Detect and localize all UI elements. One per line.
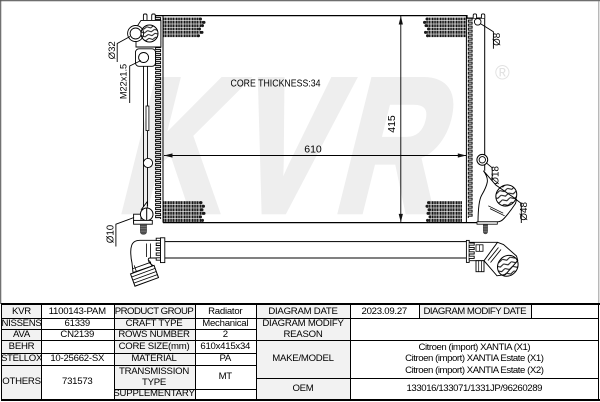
svg-text:Ø8: Ø8 bbox=[492, 32, 503, 46]
svg-text:®: ® bbox=[495, 63, 510, 85]
svg-text:Ø48: Ø48 bbox=[519, 201, 530, 220]
svg-text:610: 610 bbox=[304, 144, 322, 156]
svg-text:Ø32: Ø32 bbox=[107, 41, 118, 59]
svg-text:415: 415 bbox=[386, 115, 398, 133]
svg-text:Ø10: Ø10 bbox=[105, 224, 116, 243]
svg-text:M22x1.5: M22x1.5 bbox=[118, 64, 128, 99]
svg-text:CORE THICKNESS:34: CORE THICKNESS:34 bbox=[231, 79, 321, 90]
